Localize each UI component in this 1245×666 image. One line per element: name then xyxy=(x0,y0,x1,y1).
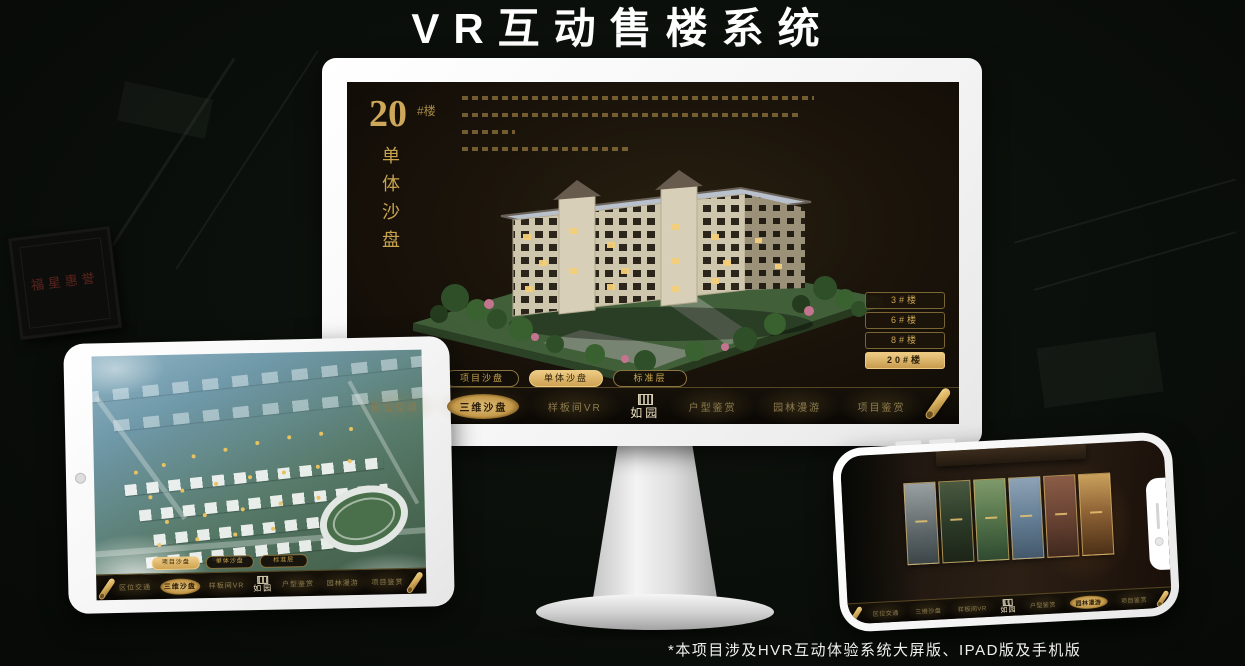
phone-speaker-icon xyxy=(1155,502,1159,528)
page-title: VR互动售楼系统 xyxy=(0,0,1245,56)
nav-item-unit-view[interactable]: 户型鉴赏 xyxy=(278,575,318,592)
scene-card-warm-interior[interactable] xyxy=(1078,472,1114,556)
nav-item-3d-sandtable[interactable]: 三维沙盘 xyxy=(447,394,519,419)
bg-road-line xyxy=(175,50,318,269)
phone-notch xyxy=(1145,478,1170,571)
scroll-handle-icon[interactable] xyxy=(850,606,863,622)
subtab-single-sandtable[interactable]: 单体沙盘 xyxy=(529,370,603,387)
nav-item-unit-view[interactable]: 户型鉴赏 xyxy=(681,394,745,419)
scroll-handle-icon[interactable] xyxy=(1157,590,1170,606)
tablet-device: 项目沙盘 单体沙盘 标准层 区位交通 三维沙盘 样板间VR 如园 户型鉴赏 园林… xyxy=(63,336,455,614)
text-line xyxy=(462,96,814,100)
phone-screen: 区位交通 三维沙盘 样板间VR 如园 户型鉴赏 园林漫游 项目鉴赏 xyxy=(840,440,1172,625)
tablet-sandtable-subtabs: 项目沙盘 单体沙盘 标准层 xyxy=(152,554,308,570)
logo-seal-icon xyxy=(638,394,653,405)
scene-card-garden[interactable] xyxy=(973,478,1009,562)
logo-text: 如园 xyxy=(1000,606,1016,614)
bg-building-block xyxy=(117,81,213,139)
tablet-camera-icon xyxy=(75,473,86,484)
subtab-single-sandtable[interactable]: 单体沙盘 xyxy=(206,555,254,569)
floor-button-6[interactable]: 6#楼 xyxy=(865,312,945,329)
nav-item-showroom-vr[interactable]: 样板间VR xyxy=(540,394,610,419)
building-number-unit: #楼 xyxy=(417,102,436,119)
nav-item-project-view[interactable]: 项目鉴赏 xyxy=(367,573,407,590)
logo-seal-icon xyxy=(257,576,268,584)
brand-logo: 如园 xyxy=(630,394,660,419)
nav-item-unit-view[interactable]: 户型鉴赏 xyxy=(1027,597,1060,612)
nav-item-3d-sandtable[interactable]: 三维沙盘 xyxy=(160,578,200,595)
phone-camera-icon xyxy=(1154,536,1163,545)
scene-card-interior-green[interactable] xyxy=(938,480,974,564)
nav-item-location-traffic[interactable]: 区位交通 xyxy=(869,605,902,620)
text-line xyxy=(462,113,800,117)
nav-item-showroom-vr[interactable]: 样板间VR xyxy=(955,600,990,615)
brand-logo: 如园 xyxy=(1000,598,1017,614)
bg-building-block xyxy=(1036,332,1163,408)
nav-item-garden-roam[interactable]: 园林漫游 xyxy=(1069,594,1108,609)
subtab-project-sandtable[interactable]: 项目沙盘 xyxy=(445,370,519,387)
nav-item-3d-sandtable[interactable]: 三维沙盘 xyxy=(912,603,945,618)
bg-road-line xyxy=(1014,178,1236,243)
monitor-stand-neck xyxy=(593,444,717,598)
bg-road-line xyxy=(1034,231,1236,291)
nav-item-garden-roam[interactable]: 园林漫游 xyxy=(765,394,829,419)
phone-device: 区位交通 三维沙盘 样板间VR 如园 户型鉴赏 园林漫游 项目鉴赏 xyxy=(831,431,1180,633)
nav-item-project-view[interactable]: 项目鉴赏 xyxy=(1118,592,1151,607)
scene-card-courtyard[interactable] xyxy=(903,482,939,566)
nav-item-showroom-vr[interactable]: 样板间VR xyxy=(204,577,248,594)
nav-item-location-traffic[interactable]: 区位交通 xyxy=(363,394,427,419)
floor-button-3[interactable]: 3#楼 xyxy=(865,292,945,309)
scroll-handle-icon[interactable] xyxy=(925,386,952,419)
tablet-nav-bar: 区位交通 三维沙盘 样板间VR 如园 户型鉴赏 园林漫游 项目鉴赏 xyxy=(96,568,426,601)
floor-button-group: 3#楼 6#楼 8#楼 20#楼 xyxy=(865,292,945,372)
text-line xyxy=(462,130,515,134)
nav-item-location-traffic[interactable]: 区位交通 xyxy=(115,579,155,596)
subtab-standard-floor[interactable]: 标准层 xyxy=(260,554,308,568)
floor-button-8[interactable]: 8#楼 xyxy=(865,332,945,349)
logo-text: 如园 xyxy=(630,407,660,419)
subtab-project-sandtable[interactable]: 项目沙盘 xyxy=(152,556,200,570)
nav-item-garden-roam[interactable]: 园林漫游 xyxy=(323,574,363,591)
monitor-stand-base xyxy=(536,594,774,630)
building-number-heading: 20 xyxy=(369,92,407,136)
monitor-device: 20 #楼 单体沙盘 xyxy=(322,58,982,446)
logo-seal-icon xyxy=(1003,598,1013,606)
main-nav-bar: 区位交通 三维沙盘 样板间VR 如园 户型鉴赏 园林漫游 项目鉴赏 xyxy=(347,387,959,424)
phone-volume-button xyxy=(929,439,955,444)
scene-card-autumn[interactable] xyxy=(1043,474,1079,558)
scene-card-building[interactable] xyxy=(1008,476,1044,560)
phone-volume-button xyxy=(895,440,921,445)
footnote-text: *本项目涉及HVR互动体验系统大屏版、IPAD版及手机版 xyxy=(668,639,1081,660)
nav-item-project-view[interactable]: 项目鉴赏 xyxy=(850,394,914,419)
background-plaque: 福星惠誉 xyxy=(8,226,122,340)
floor-button-20[interactable]: 20#楼 xyxy=(865,352,945,369)
subtab-standard-floor[interactable]: 标准层 xyxy=(613,370,687,387)
sandtable-subtabs: 项目沙盘 单体沙盘 标准层 xyxy=(445,370,687,387)
stadium xyxy=(311,475,416,563)
building-3d-model xyxy=(393,138,905,392)
vr-sales-system-poster: 福星惠誉 VR互动售楼系统 20 #楼 单体沙盘 xyxy=(0,0,1245,666)
